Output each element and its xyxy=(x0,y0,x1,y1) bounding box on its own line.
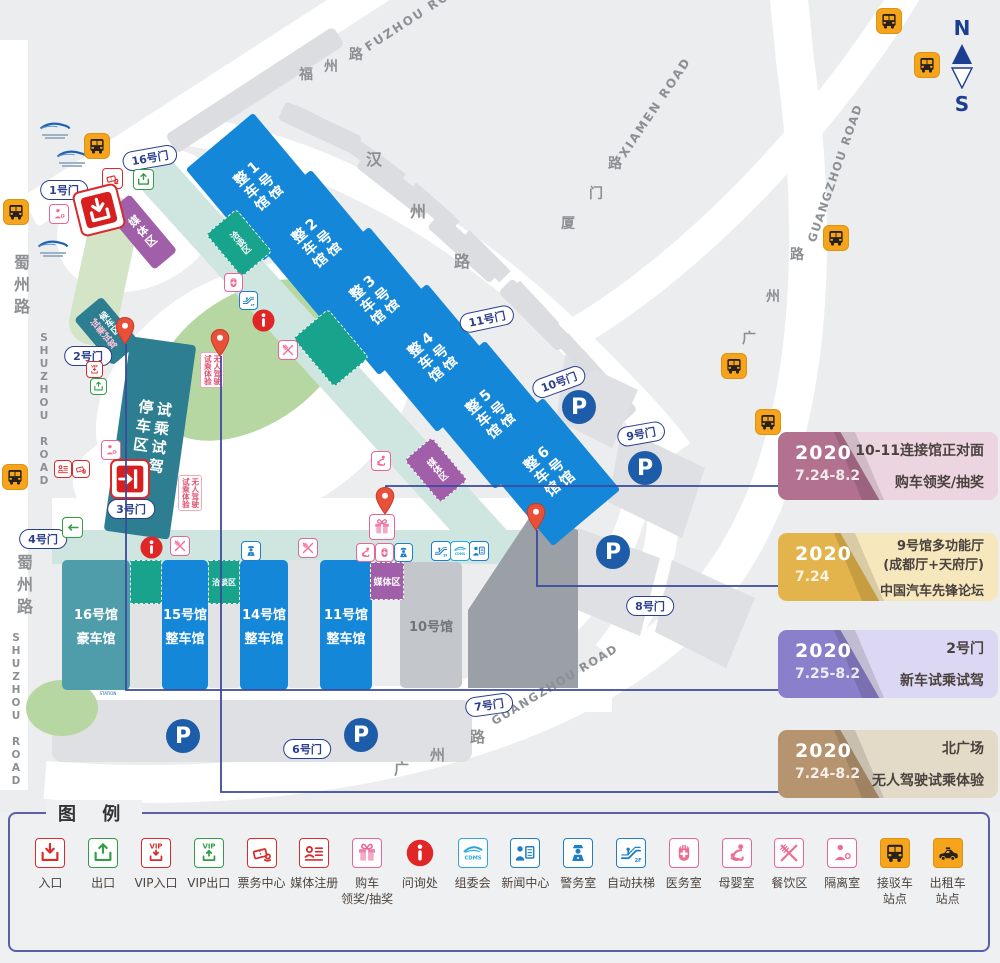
hall-sub: 整车馆 xyxy=(326,628,365,647)
road-label: 福 xyxy=(299,64,313,84)
cdms-icon: CDMS xyxy=(458,838,488,868)
callout-line: 10-11连接馆正对面 xyxy=(855,440,984,460)
road-label: 厦 xyxy=(561,213,575,233)
legend-item-tickets: 票务中心 xyxy=(235,838,288,907)
legend-item-label: 问询处 xyxy=(402,876,438,892)
road-label: 州 xyxy=(766,286,780,306)
media-reg-icon xyxy=(54,460,72,478)
legend-item-label: 入口 xyxy=(38,876,62,892)
callout-date: 7.24-8.2 xyxy=(795,766,860,782)
bus-stop-icon xyxy=(876,8,902,34)
hall-gap xyxy=(288,560,320,688)
legend-item-exit: 出口 xyxy=(77,838,130,907)
parking-icon: P xyxy=(562,390,596,424)
callout-date: 7.25-8.2 xyxy=(795,666,860,682)
police-icon xyxy=(394,543,413,562)
mother-baby-icon xyxy=(371,451,391,471)
road-label: GUANGZHOU ROAD xyxy=(805,102,866,244)
medical-icon xyxy=(224,273,243,292)
bus-stop-icon xyxy=(914,52,940,78)
hall-gap xyxy=(130,604,162,688)
auto-show-venue-map: 候车区试乘试驾试乘试驾停车区媒体区洽谈区媒体区洽谈区媒体区1号馆整车馆2号馆整车… xyxy=(0,0,1000,963)
medical-icon xyxy=(375,543,394,562)
legend-item-police: 警务室 xyxy=(552,838,605,907)
info-icon xyxy=(405,838,435,868)
gate-8号门: 8号门 xyxy=(626,596,674,616)
legend-item-label: 组委会 xyxy=(455,876,491,892)
legend-item-info: 问询处 xyxy=(393,838,446,907)
svg-text:CDMS: CDMS xyxy=(464,855,481,861)
compass-north-label: N xyxy=(954,16,971,40)
svg-text:VIP: VIP xyxy=(149,843,162,851)
medical-icon xyxy=(669,838,699,868)
road-label: 路 xyxy=(454,248,470,272)
legend-item-taxi: 出租车 站点 xyxy=(921,838,974,907)
road-label: 蜀州路 xyxy=(11,554,35,620)
hall-name: 14号馆 xyxy=(242,604,286,623)
exit-icon xyxy=(90,378,107,395)
gate-4号门: 4号门 xyxy=(19,529,67,549)
legend-item-label: 餐饮区 xyxy=(771,876,807,892)
svg-text:2F: 2F xyxy=(635,858,642,864)
road-label: 汉 xyxy=(366,146,382,170)
svg-text:VIP: VIP xyxy=(91,364,98,368)
big-entrance-door-icon xyxy=(110,459,150,499)
hall-name: 10号馆 xyxy=(409,616,453,635)
vip-exit-icon: VIP xyxy=(194,838,224,868)
legend-item-vip-entrance: VIPVIP入口 xyxy=(130,838,183,907)
info-icon xyxy=(139,535,164,560)
isolation-icon xyxy=(101,440,121,460)
svg-text:2F: 2F xyxy=(443,554,447,558)
road-label: 广 xyxy=(394,758,409,779)
road-label: 蜀州路 xyxy=(8,254,32,320)
callout-date: 7.24 xyxy=(795,569,830,585)
route-tag: 无人驾驶试乘体验 xyxy=(200,352,224,388)
exit-left-icon xyxy=(62,517,83,538)
road-label: 路 xyxy=(470,726,485,747)
road-label: XIAMEN ROAD xyxy=(616,55,693,160)
mother-baby-icon xyxy=(722,838,752,868)
media-zone: 媒体区 xyxy=(370,562,404,600)
event-callout: 20207.24-8.2北广场无人驾驶试乘体验 xyxy=(778,730,998,798)
event-callout: 20207.24-8.210-11连接馆正对面购车领奖/抽奖 xyxy=(778,432,998,500)
legend-item-dining: 餐饮区 xyxy=(763,838,816,907)
road-label: 路 xyxy=(608,153,622,173)
legend-item-label: VIP出口 xyxy=(187,876,230,892)
compass: N S xyxy=(944,16,980,116)
legend-item-media-reg: 媒体注册 xyxy=(288,838,341,907)
mother-baby-icon xyxy=(356,543,375,562)
legend: 图 例 入口出口VIPVIP入口VIPVIP出口票务中心媒体注册购车 领奖/抽奖… xyxy=(8,812,990,952)
road-label: 广 xyxy=(742,328,756,348)
legend-item-label: 医务室 xyxy=(666,876,702,892)
dining-icon xyxy=(170,536,190,556)
dining-icon xyxy=(278,340,298,360)
callout-line: (成都厅+天府厅) xyxy=(883,554,984,573)
hall-16号馆: 16号馆豪车馆 xyxy=(62,560,130,690)
road-label: SHUZHOU ROAD xyxy=(10,632,22,788)
legend-item-label: 票务中心 xyxy=(238,876,286,892)
gate-9号门: 9号门 xyxy=(616,420,666,448)
road-label: 州 xyxy=(430,744,445,765)
isolation-icon xyxy=(49,204,69,224)
legend-item-vip-exit: VIPVIP出口 xyxy=(182,838,235,907)
hall-sub: 整车馆 xyxy=(165,628,204,647)
event-callout: 20207.249号馆多功能厅(成都厅+天府厅)中国汽车先锋论坛 xyxy=(778,533,998,601)
gift-icon xyxy=(369,514,395,540)
road-label: SHUZHOU ROAD xyxy=(38,332,50,488)
legend-item-entrance: 入口 xyxy=(24,838,77,907)
callout-text: 9号馆多功能厅(成都厅+天府厅)中国汽车先锋论坛 xyxy=(880,533,984,601)
dining-icon xyxy=(774,838,804,868)
gate-6号门: 6号门 xyxy=(283,739,331,759)
metro-station-logo xyxy=(25,238,81,257)
callout-line: 购车领奖/抽奖 xyxy=(895,472,984,492)
tickets-icon xyxy=(247,838,277,868)
legend-item-label: 隔离室 xyxy=(824,876,860,892)
callout-year: 2020 xyxy=(795,543,852,565)
taxi-icon xyxy=(933,838,963,868)
legend-item-escalator: 2F自动扶梯 xyxy=(605,838,658,907)
hall-11号馆: 11号馆整车馆 xyxy=(320,560,372,690)
info-icon xyxy=(251,308,276,333)
gate-11号门: 11号门 xyxy=(458,303,516,334)
svg-text:VIP: VIP xyxy=(202,843,215,851)
hall-sub: 豪车馆 xyxy=(76,628,115,647)
hall-10号馆: 10号馆 xyxy=(400,562,462,688)
svg-text:CDMS: CDMS xyxy=(455,552,466,556)
parking-icon: P xyxy=(628,451,662,485)
tickets-icon xyxy=(72,460,90,478)
road-label: 州 xyxy=(410,198,426,222)
legend-item-label: 警务室 xyxy=(560,876,596,892)
news-icon xyxy=(510,838,540,868)
police-icon xyxy=(563,838,593,868)
big-entrance-icon xyxy=(71,182,127,238)
talks-zone: 洽谈区 xyxy=(208,560,240,604)
callout-line: 无人驾驶试乘体验 xyxy=(872,770,984,790)
legend-item-label: 自动扶梯 xyxy=(607,876,655,892)
compass-south-label: S xyxy=(955,92,969,116)
bus-stop-icon xyxy=(84,133,110,159)
legend-item-label: 接驳车 站点 xyxy=(877,876,913,907)
road-label: 州 xyxy=(324,56,338,76)
legend-item-label: 母婴室 xyxy=(719,876,755,892)
legend-title: 图 例 xyxy=(46,800,142,826)
police-icon xyxy=(241,541,261,561)
legend-item-label: 新闻中心 xyxy=(501,876,549,892)
road-label: GUANGZHOU ROAD xyxy=(489,641,621,728)
hall-gap xyxy=(208,604,240,688)
svg-text:2F: 2F xyxy=(251,303,255,307)
parking-icon: P xyxy=(166,719,200,753)
isolation-icon xyxy=(827,838,857,868)
road-label: 门 xyxy=(589,183,603,203)
route-tag: 无人驾驶试乘体验 xyxy=(178,475,202,511)
road-label: FUZHOU ROAD xyxy=(362,0,471,54)
talks-zone xyxy=(130,560,162,604)
legend-item-label: 出口 xyxy=(91,876,115,892)
callout-date: 7.24-8.2 xyxy=(795,468,860,484)
legend-item-label: 购车 领奖/抽奖 xyxy=(341,876,393,907)
gift-icon xyxy=(352,838,382,868)
exit-icon xyxy=(133,169,154,190)
news-icon xyxy=(469,541,489,561)
hall-15号馆: 15号馆整车馆 xyxy=(162,560,208,690)
callout-line: 2号门 xyxy=(946,638,984,658)
callout-year: 2020 xyxy=(795,640,852,662)
callout-text: 10-11连接馆正对面购车领奖/抽奖 xyxy=(855,432,984,500)
bus-stop-icon xyxy=(721,353,747,379)
shuttle-bus-icon xyxy=(880,838,910,868)
cdms-icon: CDMS xyxy=(450,541,470,561)
callout-year: 2020 xyxy=(795,740,852,762)
callout-line: 9号馆多功能厅 xyxy=(897,535,984,554)
metro-station-logo xyxy=(27,120,83,139)
road-label: 路 xyxy=(349,44,363,64)
legend-item-label: 出租车 站点 xyxy=(930,876,966,907)
hall-name: 16号馆 xyxy=(74,604,118,623)
callout-text: 2号门新车试乘试驾 xyxy=(900,630,984,698)
bus-stop-icon xyxy=(3,199,29,225)
hall-14号馆: 14号馆整车馆 xyxy=(240,560,288,690)
legend-items: 入口出口VIPVIP入口VIPVIP出口票务中心媒体注册购车 领奖/抽奖问询处C… xyxy=(24,838,974,907)
road-label: 路 xyxy=(790,244,804,264)
legend-item-label: 媒体注册 xyxy=(290,876,338,892)
legend-item-shuttle-bus: 接驳车 站点 xyxy=(869,838,922,907)
legend-item-gift: 购车 领奖/抽奖 xyxy=(341,838,394,907)
bus-stop-icon xyxy=(823,225,849,251)
hall-name: 15号馆 xyxy=(163,604,207,623)
callout-text: 北广场无人驾驶试乘体验 xyxy=(872,730,984,798)
dining-icon xyxy=(298,538,318,558)
parking-icon: P xyxy=(596,535,630,569)
gate-3号门: 3号门 xyxy=(107,499,155,519)
vip-entrance-icon: VIP xyxy=(141,838,171,868)
event-callout: 20207.25-8.22号门新车试乘试驾 xyxy=(778,630,998,698)
legend-item-mother-baby: 母婴室 xyxy=(710,838,763,907)
escalator-icon: 2F xyxy=(431,541,451,561)
entrance-icon xyxy=(35,838,65,868)
legend-item-label: VIP入口 xyxy=(134,876,177,892)
legend-item-isolation: 隔离室 xyxy=(816,838,869,907)
hall-name: 11号馆 xyxy=(324,604,368,623)
legend-item-cdms: CDMS组委会 xyxy=(446,838,499,907)
bus-stop-icon xyxy=(2,464,28,490)
compass-needle-icon xyxy=(949,43,975,89)
exit-icon xyxy=(88,838,118,868)
media-reg-icon xyxy=(299,838,329,868)
media-zone: 媒体区 xyxy=(404,437,468,503)
escalator-icon: 2F xyxy=(616,838,646,868)
callout-line: 中国汽车先锋论坛 xyxy=(880,580,984,599)
bus-stop-icon xyxy=(755,409,781,435)
legend-item-medical: 医务室 xyxy=(657,838,710,907)
parking-icon: P xyxy=(344,718,378,752)
callout-line: 北广场 xyxy=(942,738,984,758)
callout-line: 新车试乘试驾 xyxy=(900,670,984,690)
callout-year: 2020 xyxy=(795,442,852,464)
legend-item-news: 新闻中心 xyxy=(499,838,552,907)
vip-entrance-icon: VIP xyxy=(86,361,103,378)
hall-sub: 整车馆 xyxy=(244,628,283,647)
